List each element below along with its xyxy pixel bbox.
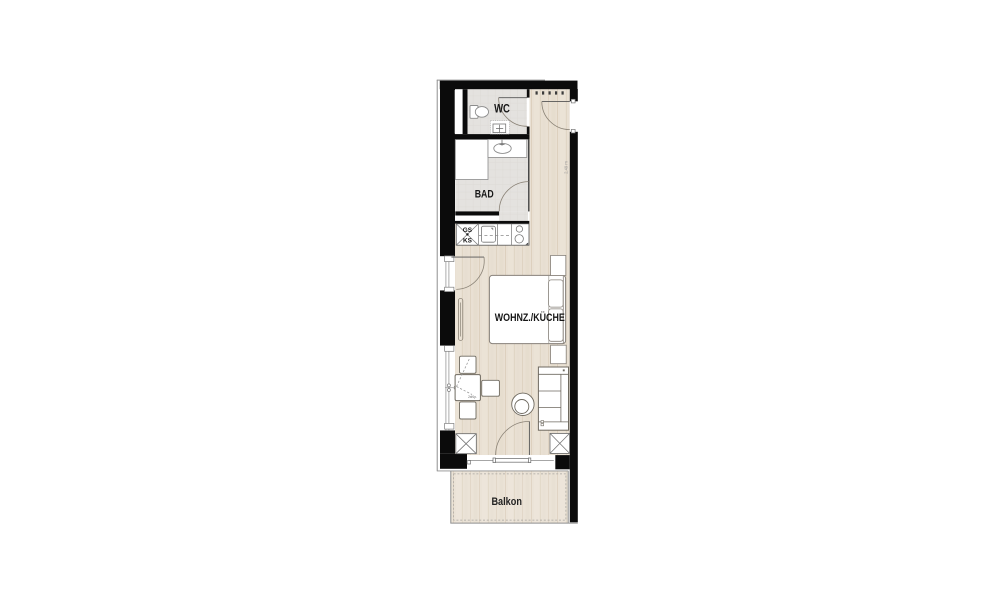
svg-text:2xKlp.: 2xKlp. <box>468 395 477 399</box>
svg-text:BAD: BAD <box>475 188 494 200</box>
svg-text:KS: KS <box>463 238 473 245</box>
svg-text:GS: GS <box>463 227 473 234</box>
svg-text:WC: WC <box>494 101 510 115</box>
svg-text:2,49 m: 2,49 m <box>564 161 569 174</box>
svg-text:WOHNZ./KÜCHE: WOHNZ./KÜCHE <box>495 311 565 324</box>
svg-text:Balkon: Balkon <box>491 496 522 508</box>
